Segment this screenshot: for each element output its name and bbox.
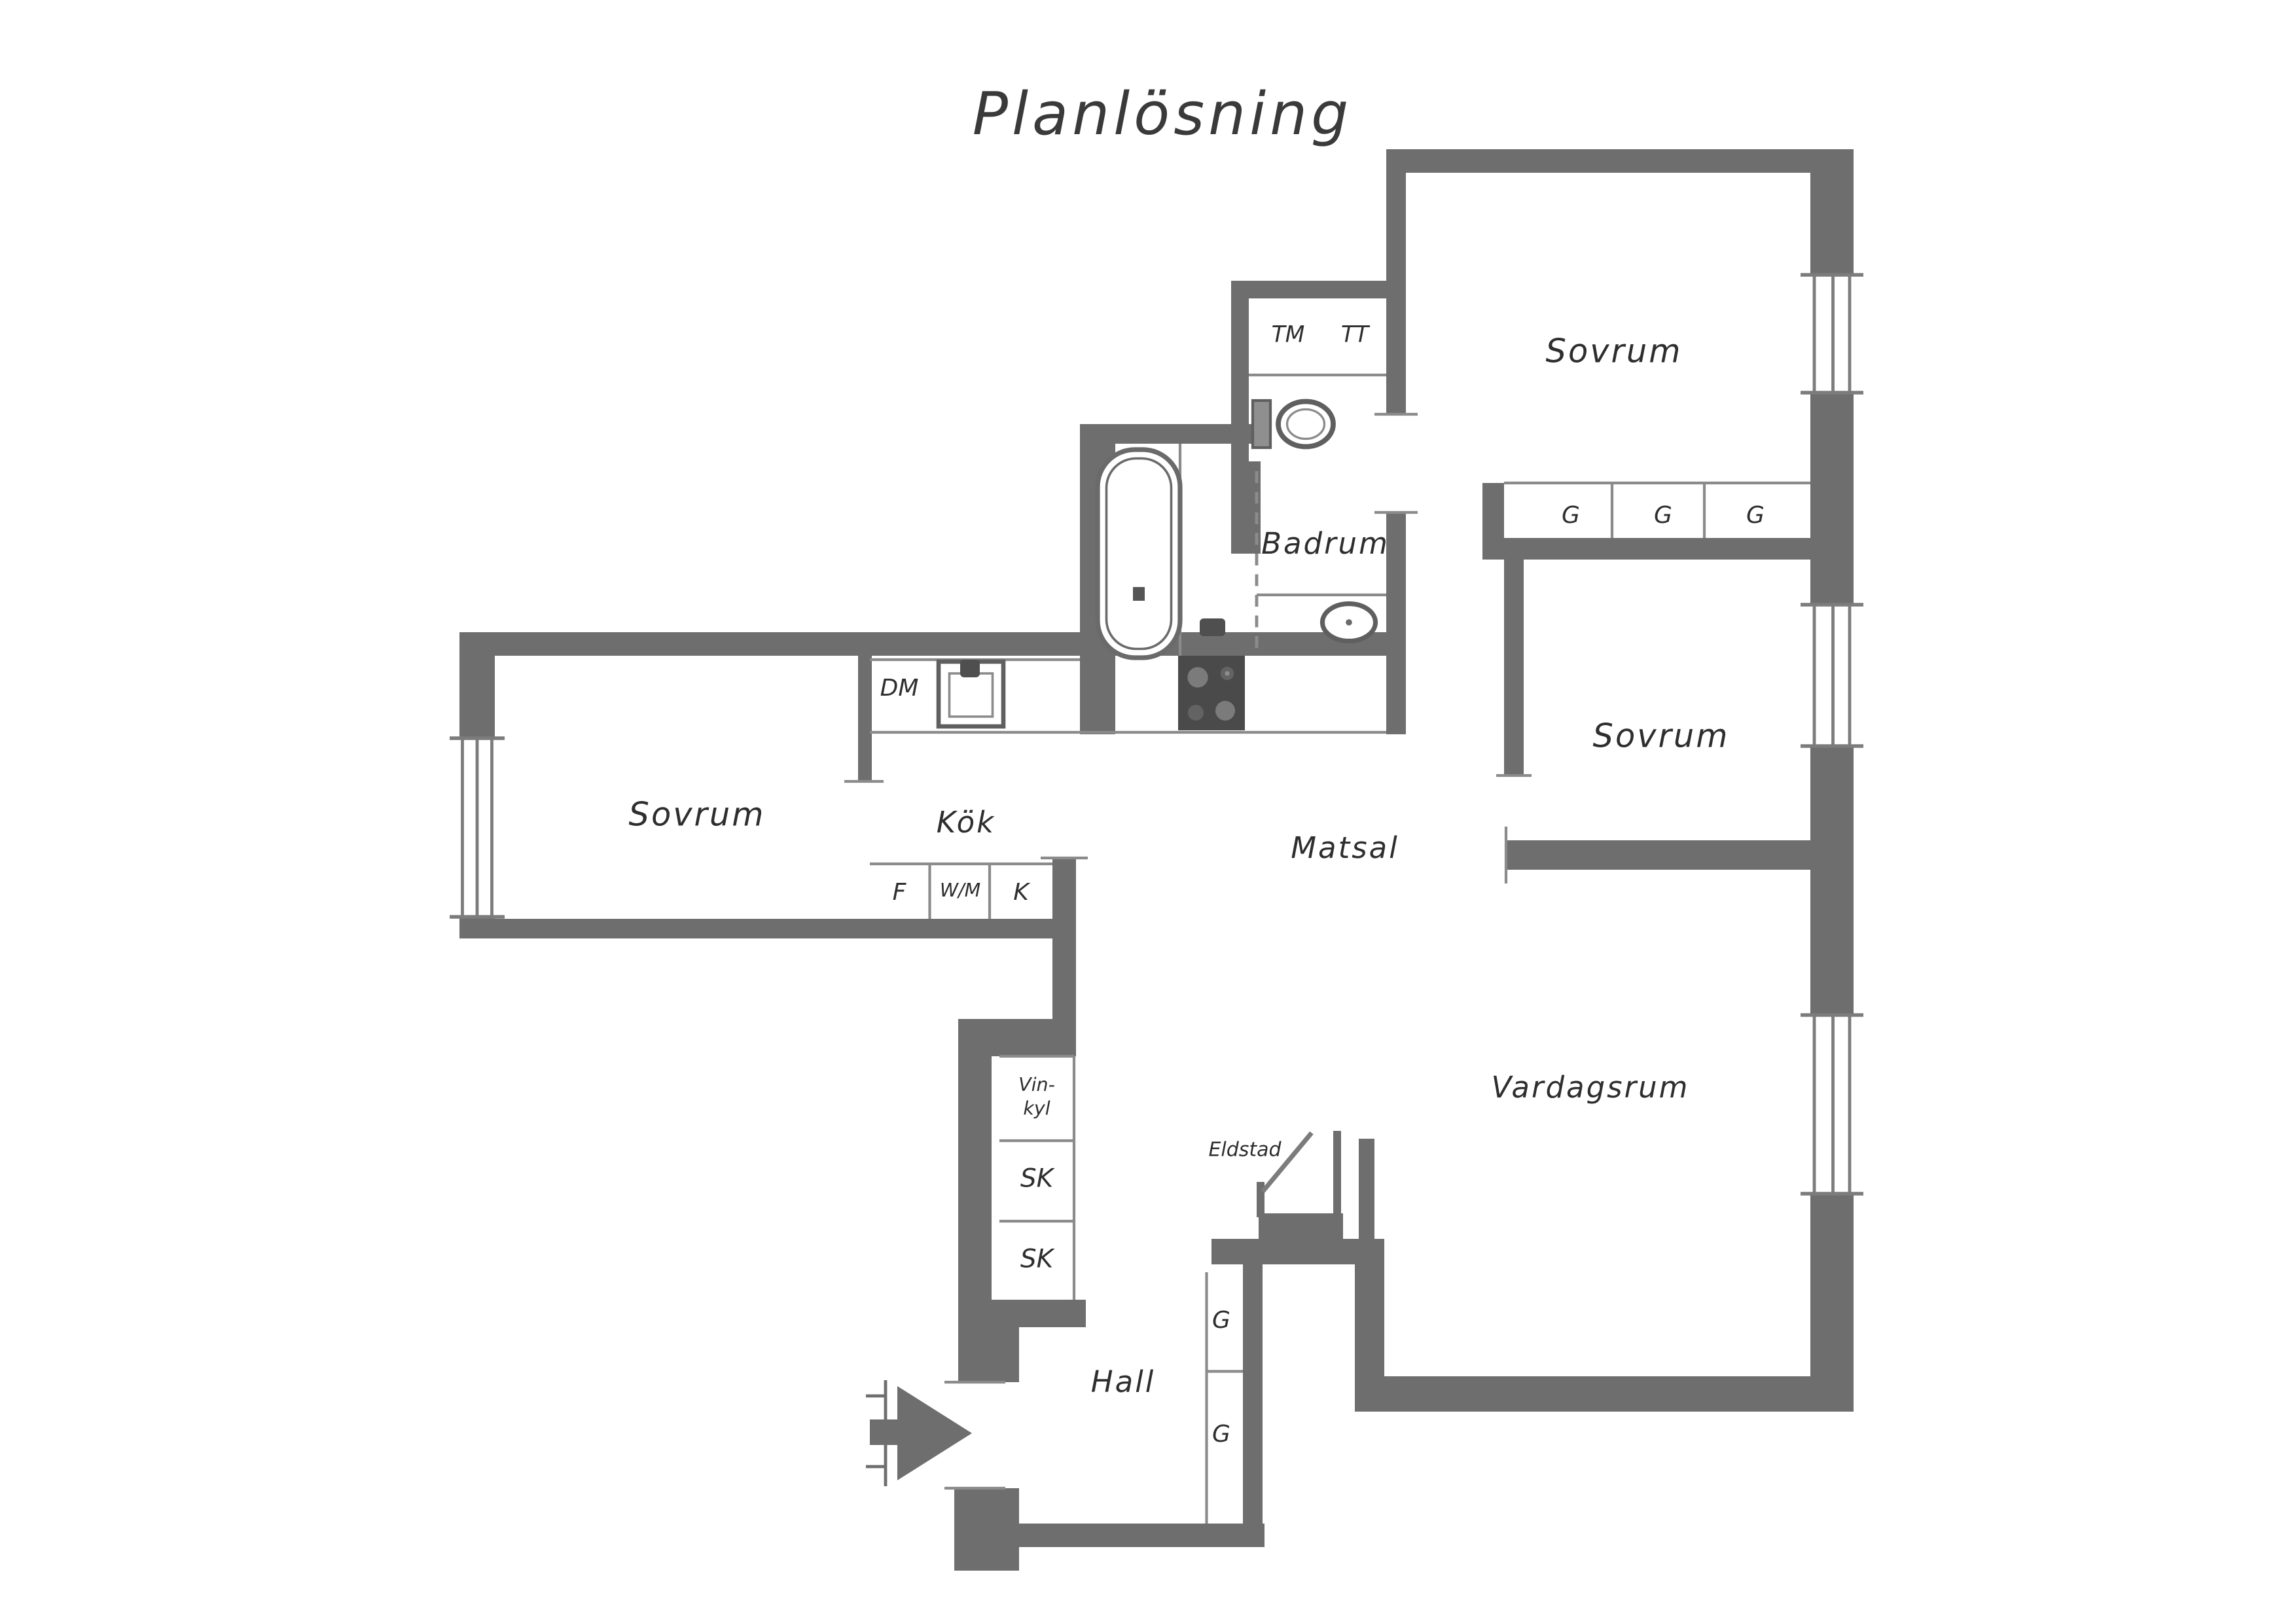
floor-plan: Planlösning Sovrum Sovrum Sovrum Badrum … [0,0,2296,1623]
room-label-kitchen: Kök [937,805,996,840]
room-label-living: Vardagsrum [1492,1070,1690,1105]
label-wardrobe-1: G [1562,502,1580,529]
room-label-bedroom-middle: Sovrum [1593,717,1730,755]
toilet-icon [1253,401,1333,448]
room-label-bathroom: Badrum [1261,526,1390,561]
label-washing-machine: TM [1272,321,1305,348]
washbasin-icon [1323,603,1376,641]
stove-icon [1178,656,1245,730]
bathtub-icon [1098,450,1180,658]
window-icon-bedroom-middle [1801,605,1863,746]
label-wardrobe-2: G [1654,502,1672,529]
label-closet-upper: SK [1020,1164,1056,1193]
label-hall-wardrobe-2: G [1212,1421,1230,1448]
label-closet-lower: SK [1020,1244,1056,1274]
room-label-bedroom-left: Sovrum [629,795,766,833]
label-fireplace: Eldstad [1208,1138,1282,1161]
room-label-hall: Hall [1091,1364,1155,1399]
label-wine-fridge-line1: Vin- [1018,1074,1055,1096]
bath-faucet-icon [1200,618,1225,636]
label-tumble-dryer: TT [1341,321,1371,348]
room-label-dining: Matsal [1291,830,1399,865]
label-fridge: F [893,879,907,906]
label-dishwasher: DM [880,675,919,702]
room-label-bedroom-top: Sovrum [1546,332,1683,370]
plan-title: Planlösning [973,80,1353,149]
label-wine-fridge-line2: kyl [1023,1097,1050,1119]
kitchen-sink-icon [939,660,1003,726]
window-icon-living-room [1801,1015,1863,1194]
label-washer-middle: W/M [940,880,980,901]
label-wardrobe-3: G [1746,502,1765,529]
label-freezer: K [1013,879,1030,906]
window-icon-bedroom-top [1801,275,1863,393]
window-icon-bedroom-left [450,738,505,917]
label-hall-wardrobe-1: G [1212,1307,1230,1334]
